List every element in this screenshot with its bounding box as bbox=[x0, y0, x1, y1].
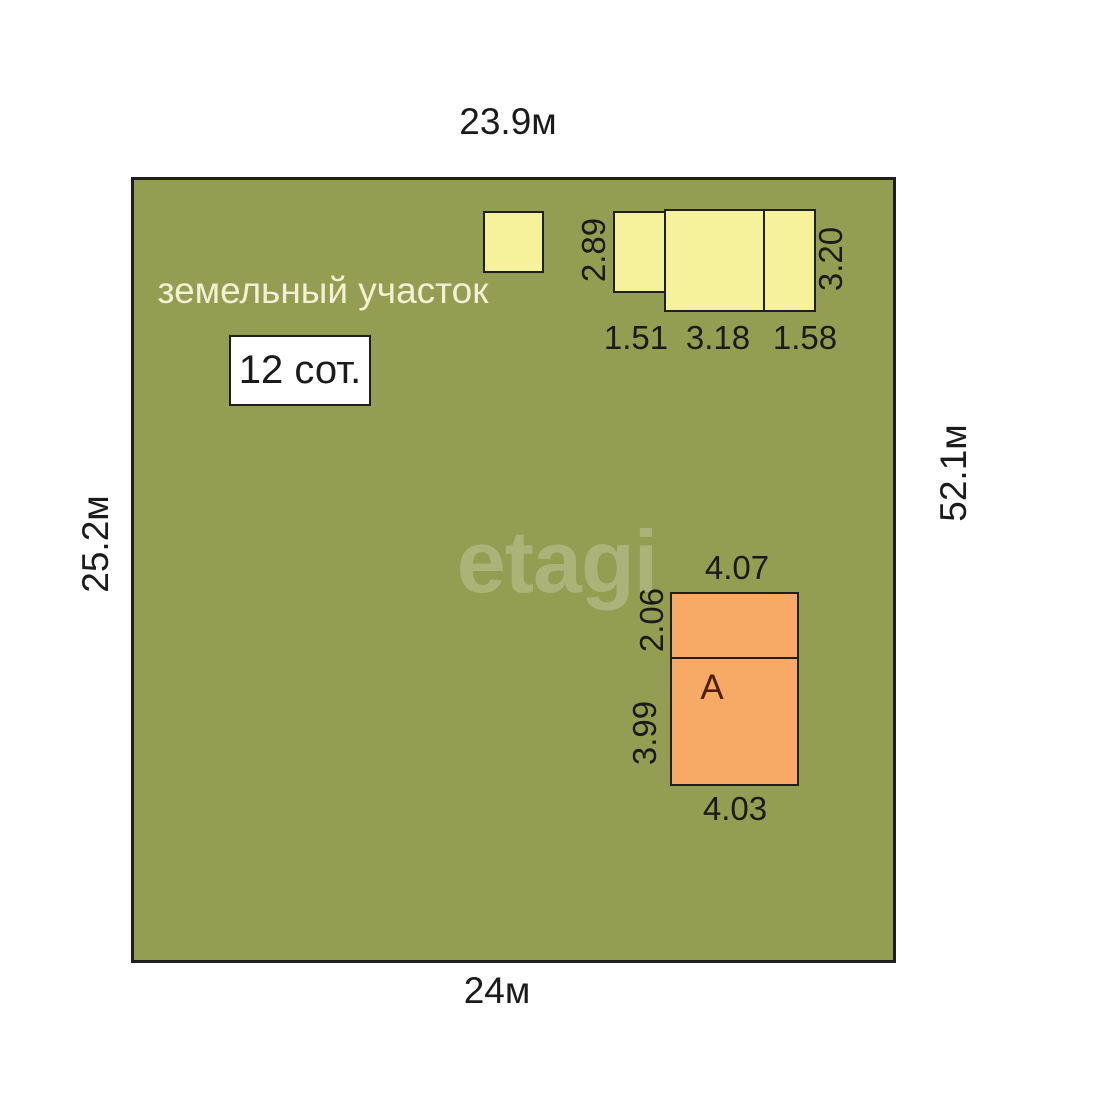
outbuilding-left bbox=[613, 211, 666, 293]
house-dim-height-bottom: 3.99 bbox=[626, 701, 664, 765]
outbuilding-dim-height-right: 3.20 bbox=[812, 227, 850, 291]
plot-dim-left: 25.2м bbox=[75, 495, 117, 592]
house-dim-height-top: 2.06 bbox=[633, 588, 671, 652]
plot-area-badge: 12 сот. bbox=[229, 335, 371, 406]
main-house bbox=[670, 592, 799, 786]
outbuilding-dim-width-right: 1.58 bbox=[773, 319, 837, 357]
outbuilding-dim-width-left: 1.51 bbox=[604, 319, 668, 357]
main-house-divider bbox=[672, 657, 797, 659]
outbuilding-right bbox=[763, 209, 816, 312]
outbuilding-dim-width-middle: 3.18 bbox=[686, 319, 750, 357]
watermark-logo: etagi bbox=[457, 511, 657, 613]
outbuilding-shed bbox=[483, 211, 544, 273]
plot-dim-bottom: 24м bbox=[464, 970, 531, 1012]
main-house-letter: А bbox=[700, 668, 723, 708]
plot-dim-right: 52.1м bbox=[933, 424, 975, 521]
site-plan-canvas: etagi земельный участок 12 сот. А 23.9м … bbox=[0, 0, 1117, 1117]
house-dim-width-bottom: 4.03 bbox=[703, 790, 767, 828]
plot-name-label: земельный участок bbox=[158, 270, 489, 312]
house-dim-width-top: 4.07 bbox=[705, 549, 769, 587]
outbuilding-middle bbox=[664, 209, 765, 312]
plot-dim-top: 23.9м bbox=[459, 101, 556, 143]
outbuilding-dim-height-left: 2.89 bbox=[575, 218, 613, 282]
